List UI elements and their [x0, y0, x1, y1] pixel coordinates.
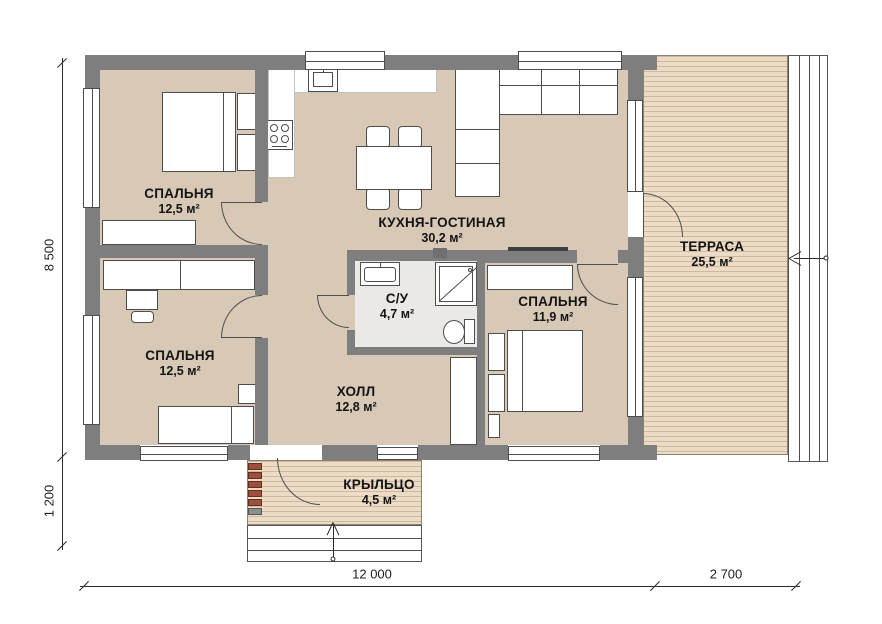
wardrobe [103, 260, 255, 290]
ladder-mark [248, 499, 262, 506]
ladder-mark [248, 472, 262, 479]
nightstand [488, 374, 505, 412]
porch-arrow-dot [331, 557, 336, 562]
window [83, 88, 100, 208]
window [508, 446, 600, 461]
nightstand [237, 93, 256, 130]
window [627, 100, 643, 192]
vent-block [433, 248, 447, 258]
double-bed [507, 330, 583, 412]
dining-chair [398, 126, 422, 148]
wall-segment [255, 258, 268, 295]
ladder-mark [248, 508, 262, 515]
dimension-label-width-terrace: 2 700 [710, 567, 743, 582]
bench [488, 414, 500, 438]
room-label-bedroom-right: СПАЛЬНЯ 11,9 м² [518, 294, 587, 324]
sofa-vertical [455, 68, 500, 197]
room-label-bathroom: С/У 4,7 м² [380, 291, 414, 321]
room-label-bedroom-top-left: СПАЛЬНЯ 12,5 м² [144, 186, 213, 216]
wall-segment [322, 445, 377, 460]
window [627, 277, 643, 417]
room-label-terrace: ТЕРРАСА 25,5 м² [680, 239, 744, 269]
wall-segment [418, 445, 508, 460]
wall-segment [477, 261, 485, 445]
dining-chair [366, 188, 390, 210]
toilet [443, 320, 465, 344]
window [83, 315, 100, 425]
door-leaf [577, 264, 618, 265]
stove [266, 120, 293, 150]
window [377, 447, 418, 460]
door-leaf [317, 295, 349, 296]
door-leaf [221, 202, 262, 203]
dimension-line-bottom [80, 586, 800, 587]
wall-segment [85, 55, 100, 88]
wall-segment [347, 330, 355, 347]
wall-segment [618, 250, 628, 263]
window [140, 446, 228, 461]
wall-segment [485, 250, 577, 263]
nightstand [238, 384, 256, 404]
porch-arrow-line [333, 524, 334, 560]
double-bed [162, 92, 236, 172]
wall-segment [255, 338, 268, 445]
dining-chair [398, 188, 422, 210]
rail-line [508, 247, 568, 251]
terrace-arrow-line [794, 258, 826, 259]
wall-segment [347, 261, 355, 295]
terrace-arrow-dot [824, 256, 829, 261]
dimension-label-height-porch: 1 200 [42, 485, 57, 518]
wall-segment [85, 208, 100, 315]
room-label-hall: ХОЛЛ 12,8 м² [335, 384, 376, 414]
window [305, 51, 385, 70]
nightstand [237, 134, 256, 171]
ladder-mark [248, 481, 262, 488]
hall-closet [450, 357, 477, 445]
door-leaf [221, 337, 262, 338]
nightstand [488, 333, 505, 371]
wall-segment [228, 445, 250, 460]
dimension-label-width-main: 12 000 [352, 567, 392, 582]
dining-table [356, 146, 432, 190]
dining-chair [366, 126, 390, 148]
desk [126, 290, 158, 310]
wall-segment [628, 55, 643, 100]
toilet-tank [464, 319, 475, 344]
single-bed [158, 406, 254, 444]
dimension-label-height-main: 8 500 [42, 239, 57, 272]
wall-segment [347, 347, 485, 355]
wall-segment [85, 55, 305, 70]
desk-chair [131, 311, 154, 323]
wardrobe [102, 220, 196, 245]
room-label-bedroom-bottom-left: СПАЛЬНЯ 12,5 м² [145, 348, 214, 378]
dimension-line-left [62, 58, 63, 550]
wall-segment [628, 237, 643, 277]
ladder-mark [248, 490, 262, 497]
room-label-porch: КРЫЛЬЦО 4,5 м² [343, 477, 414, 507]
room-label-kitchen-living: КУХНЯ-ГОСТИНАЯ 30,2 м² [378, 215, 505, 245]
window [518, 51, 622, 70]
wall-segment [255, 70, 268, 202]
wall-segment [85, 445, 140, 460]
wall-segment [628, 417, 643, 460]
wall-segment [100, 245, 268, 258]
floor-plan: 8 500 1 200 12 000 2 700 СПАЛЬНЯ 12,5 м²… [0, 0, 882, 624]
wardrobe [487, 265, 573, 290]
ladder-mark [248, 463, 262, 470]
shower [435, 262, 477, 306]
wall-segment [347, 250, 485, 261]
washbasin [360, 262, 400, 286]
door-leaf [643, 193, 644, 237]
wall-segment [385, 55, 518, 70]
